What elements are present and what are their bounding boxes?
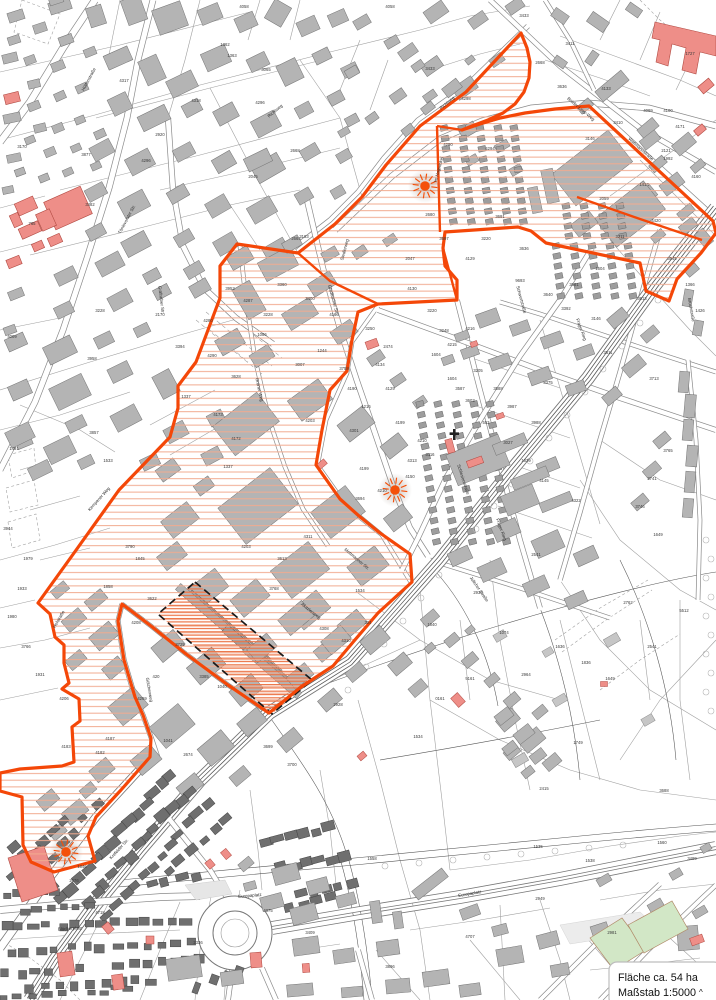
svg-text:3228: 3228 xyxy=(95,308,105,313)
svg-text:3741: 3741 xyxy=(647,476,657,481)
svg-text:2541: 2541 xyxy=(531,552,541,557)
svg-text:3628: 3628 xyxy=(231,374,241,379)
svg-text:4150: 4150 xyxy=(405,474,415,479)
svg-text:3146: 3146 xyxy=(585,136,595,141)
svg-text:1074: 1074 xyxy=(499,630,509,635)
svg-text:3170: 3170 xyxy=(17,144,27,149)
svg-text:4199: 4199 xyxy=(395,420,405,425)
svg-text:3228: 3228 xyxy=(263,312,273,317)
svg-text:3636: 3636 xyxy=(519,246,529,251)
svg-text:1413: 1413 xyxy=(639,182,649,187)
svg-text:4208: 4208 xyxy=(131,620,141,625)
svg-text:3027: 3027 xyxy=(503,440,513,445)
svg-text:2047: 2047 xyxy=(405,256,415,261)
svg-text:3765: 3765 xyxy=(663,448,673,453)
svg-text:2674: 2674 xyxy=(183,752,193,757)
svg-text:2336: 2336 xyxy=(193,940,203,945)
svg-text:1491: 1491 xyxy=(9,446,19,451)
svg-text:3613: 3613 xyxy=(277,556,287,561)
svg-text:4375: 4375 xyxy=(263,908,273,913)
svg-text:1216: 1216 xyxy=(361,404,371,409)
svg-text:1366: 1366 xyxy=(685,282,695,287)
svg-text:3988: 3988 xyxy=(531,420,541,425)
svg-text:4707: 4707 xyxy=(465,934,475,939)
svg-text:2676: 2676 xyxy=(69,878,79,883)
svg-text:3622: 3622 xyxy=(147,596,157,601)
svg-text:3725: 3725 xyxy=(175,642,185,647)
svg-text:3987: 3987 xyxy=(507,404,517,409)
svg-text:4318: 4318 xyxy=(191,98,201,103)
svg-text:3433: 3433 xyxy=(425,66,435,71)
svg-text:3699: 3699 xyxy=(263,744,273,749)
svg-text:1649: 1649 xyxy=(653,532,663,537)
svg-text:4298: 4298 xyxy=(461,96,471,101)
svg-text:4313: 4313 xyxy=(407,458,417,463)
svg-text:3697: 3697 xyxy=(439,236,449,241)
svg-text:3896: 3896 xyxy=(385,964,395,969)
svg-text:2121: 2121 xyxy=(661,148,671,153)
svg-text:3640: 3640 xyxy=(543,292,553,297)
svg-text:2668: 2668 xyxy=(535,60,545,65)
svg-text:4296: 4296 xyxy=(141,158,151,163)
svg-text:3220: 3220 xyxy=(481,236,491,241)
svg-text:3220: 3220 xyxy=(427,308,437,313)
svg-text:4311: 4311 xyxy=(303,534,313,539)
svg-text:4210: 4210 xyxy=(377,488,387,493)
svg-text:3392: 3392 xyxy=(561,306,571,311)
svg-text:4290: 4290 xyxy=(443,142,453,147)
svg-text:1980: 1980 xyxy=(7,614,17,619)
svg-text:4129: 4129 xyxy=(385,386,395,391)
svg-text:1727: 1727 xyxy=(685,51,695,56)
svg-text:3588: 3588 xyxy=(493,386,503,391)
svg-text:4058: 4058 xyxy=(385,4,395,9)
svg-text:1337: 1337 xyxy=(181,394,191,399)
svg-text:4009: 4009 xyxy=(7,334,17,339)
svg-text:2964: 2964 xyxy=(521,672,531,677)
svg-text:3146: 3146 xyxy=(591,316,601,321)
svg-text:4171: 4171 xyxy=(675,124,685,129)
svg-text:553: 553 xyxy=(483,420,491,425)
svg-text:1558: 1558 xyxy=(367,856,377,861)
svg-text:2045: 2045 xyxy=(248,174,258,179)
svg-text:1244: 1244 xyxy=(317,348,327,353)
svg-text:4190: 4190 xyxy=(347,386,357,391)
svg-text:1534: 1534 xyxy=(413,734,423,739)
svg-text:4173: 4173 xyxy=(213,412,223,417)
svg-text:4187: 4187 xyxy=(105,736,115,741)
svg-text:3944: 3944 xyxy=(3,526,13,531)
svg-text:3790: 3790 xyxy=(125,544,135,549)
svg-text:3205: 3205 xyxy=(473,368,483,373)
svg-text:3694: 3694 xyxy=(355,496,365,501)
svg-text:2920: 2920 xyxy=(155,132,165,137)
svg-text:1836: 1836 xyxy=(581,660,591,665)
svg-text:3768: 3768 xyxy=(269,586,279,591)
svg-text:3636: 3636 xyxy=(557,84,567,89)
svg-text:2541: 2541 xyxy=(647,644,657,649)
svg-text:3499: 3499 xyxy=(687,856,697,861)
svg-text:3433: 3433 xyxy=(519,13,529,18)
svg-text:3400: 3400 xyxy=(305,296,315,301)
svg-text:2668: 2668 xyxy=(290,148,300,153)
svg-text:4296: 4296 xyxy=(255,100,265,105)
svg-text:4130: 4130 xyxy=(407,286,417,291)
svg-text:Fläche ca. 54 ha: Fläche ca. 54 ha xyxy=(618,972,698,984)
svg-text:Maßstab 1:5000: Maßstab 1:5000 xyxy=(618,987,696,999)
svg-text:3603: 3603 xyxy=(465,398,475,403)
svg-text:765: 765 xyxy=(29,221,37,226)
svg-text:1538: 1538 xyxy=(585,858,595,863)
svg-text:1533: 1533 xyxy=(103,458,113,463)
svg-text:1933: 1933 xyxy=(17,586,27,591)
svg-text:3116: 3116 xyxy=(425,452,435,457)
svg-text:3410: 3410 xyxy=(613,120,623,125)
svg-text:3877: 3877 xyxy=(81,152,91,157)
svg-text:3411: 3411 xyxy=(565,41,575,46)
svg-text:1992: 1992 xyxy=(663,156,673,161)
svg-text:1845: 1845 xyxy=(135,556,145,561)
svg-text:1649: 1649 xyxy=(605,676,615,681)
svg-text:4099: 4099 xyxy=(643,108,653,113)
svg-text:3758: 3758 xyxy=(339,366,349,371)
svg-text:1749: 1749 xyxy=(573,740,583,745)
svg-text:3958: 3958 xyxy=(87,356,97,361)
svg-text:4718: 4718 xyxy=(95,910,105,915)
svg-text:3250: 3250 xyxy=(365,326,375,331)
svg-text:5512: 5512 xyxy=(679,608,689,613)
svg-text:4210: 4210 xyxy=(417,438,427,443)
svg-text:1846: 1846 xyxy=(77,864,87,869)
svg-text:4420: 4420 xyxy=(651,218,661,223)
svg-text:1604: 1604 xyxy=(595,266,605,271)
svg-text:3613: 3613 xyxy=(637,296,647,301)
svg-text:1337: 1337 xyxy=(223,464,233,469)
svg-text:1426: 1426 xyxy=(695,308,705,313)
svg-text:3691: 3691 xyxy=(495,214,505,219)
svg-text:1979: 1979 xyxy=(23,556,33,561)
svg-text:1086: 1086 xyxy=(257,332,267,337)
svg-text:4172: 4172 xyxy=(231,436,241,441)
svg-text:4199: 4199 xyxy=(359,466,369,471)
svg-text:1363: 1363 xyxy=(227,53,237,58)
svg-text:3953: 3953 xyxy=(225,286,235,291)
svg-text:1535: 1535 xyxy=(533,844,543,849)
svg-text:4182: 4182 xyxy=(95,750,105,755)
svg-text:1829: 1829 xyxy=(521,458,531,463)
svg-text:1931: 1931 xyxy=(35,672,45,677)
svg-text:3700: 3700 xyxy=(287,762,297,767)
svg-text:0161: 0161 xyxy=(435,696,445,701)
svg-text:1858: 1858 xyxy=(103,584,113,589)
svg-text:4160: 4160 xyxy=(691,174,701,179)
svg-text:1040: 1040 xyxy=(217,684,227,689)
svg-text:^: ^ xyxy=(699,988,703,997)
svg-text:9161: 9161 xyxy=(465,676,475,681)
svg-text:3857: 3857 xyxy=(89,430,99,435)
svg-text:2415: 2415 xyxy=(539,786,549,791)
svg-text:1636: 1636 xyxy=(555,644,565,649)
svg-text:2680: 2680 xyxy=(425,212,435,217)
svg-text:9693: 9693 xyxy=(515,278,525,283)
svg-text:3681: 3681 xyxy=(569,282,579,287)
svg-text:1041: 1041 xyxy=(163,738,173,743)
svg-text:2059: 2059 xyxy=(599,196,609,201)
svg-text:1604: 1604 xyxy=(431,352,441,357)
svg-text:3183: 3183 xyxy=(299,234,309,239)
svg-text:4203: 4203 xyxy=(305,418,315,423)
svg-text:1362: 1362 xyxy=(220,42,230,47)
svg-text:1560: 1560 xyxy=(657,840,667,845)
svg-text:4216: 4216 xyxy=(465,326,475,331)
svg-text:4308: 4308 xyxy=(319,626,329,631)
svg-text:3065: 3065 xyxy=(261,67,271,72)
svg-text:4215: 4215 xyxy=(447,342,457,347)
svg-text:2928: 2928 xyxy=(333,702,343,707)
svg-text:3766: 3766 xyxy=(21,644,31,649)
svg-text:4129: 4129 xyxy=(465,256,475,261)
svg-text:3394: 3394 xyxy=(175,344,185,349)
svg-text:3713: 3713 xyxy=(649,376,659,381)
svg-text:3688: 3688 xyxy=(659,788,669,793)
svg-text:4183: 4183 xyxy=(61,744,71,749)
svg-text:3587: 3587 xyxy=(455,386,465,391)
svg-text:3007: 3007 xyxy=(295,362,305,367)
svg-text:3549: 3549 xyxy=(667,256,677,261)
svg-text:4133: 4133 xyxy=(601,86,611,91)
svg-text:4322: 4322 xyxy=(571,498,581,503)
svg-text:2762: 2762 xyxy=(623,600,633,605)
svg-text:4145: 4145 xyxy=(539,478,549,483)
svg-text:3211: 3211 xyxy=(615,234,625,239)
svg-text:1840: 1840 xyxy=(427,622,437,627)
svg-text:4294: 4294 xyxy=(485,146,495,151)
svg-text:3375: 3375 xyxy=(543,380,553,385)
svg-text:2949: 2949 xyxy=(535,896,545,901)
svg-text:1604: 1604 xyxy=(447,376,457,381)
svg-text:3360: 3360 xyxy=(277,282,287,287)
svg-text:4269: 4269 xyxy=(137,696,147,701)
svg-text:3385: 3385 xyxy=(199,674,209,679)
svg-text:2981: 2981 xyxy=(607,930,617,935)
svg-text:4203: 4203 xyxy=(241,544,251,549)
svg-text:3511: 3511 xyxy=(603,350,613,355)
svg-text:4058: 4058 xyxy=(239,4,249,9)
svg-text:324: 324 xyxy=(365,620,373,625)
svg-text:4206: 4206 xyxy=(59,696,69,701)
svg-text:4301: 4301 xyxy=(349,428,359,433)
svg-text:2474: 2474 xyxy=(383,344,393,349)
svg-text:4280: 4280 xyxy=(203,318,213,323)
svg-text:3746: 3746 xyxy=(635,504,645,509)
svg-text:3409: 3409 xyxy=(305,930,315,935)
svg-text:4100: 4100 xyxy=(663,108,673,113)
svg-text:4287: 4287 xyxy=(243,298,253,303)
svg-text:4134: 4134 xyxy=(375,362,385,367)
svg-text:420: 420 xyxy=(153,674,161,679)
svg-text:1534: 1534 xyxy=(355,588,365,593)
svg-text:4317: 4317 xyxy=(119,78,129,83)
svg-text:3482: 3482 xyxy=(85,202,95,207)
svg-text:3248: 3248 xyxy=(439,328,449,333)
svg-text:4290: 4290 xyxy=(207,353,217,358)
svg-text:4310: 4310 xyxy=(341,638,351,643)
